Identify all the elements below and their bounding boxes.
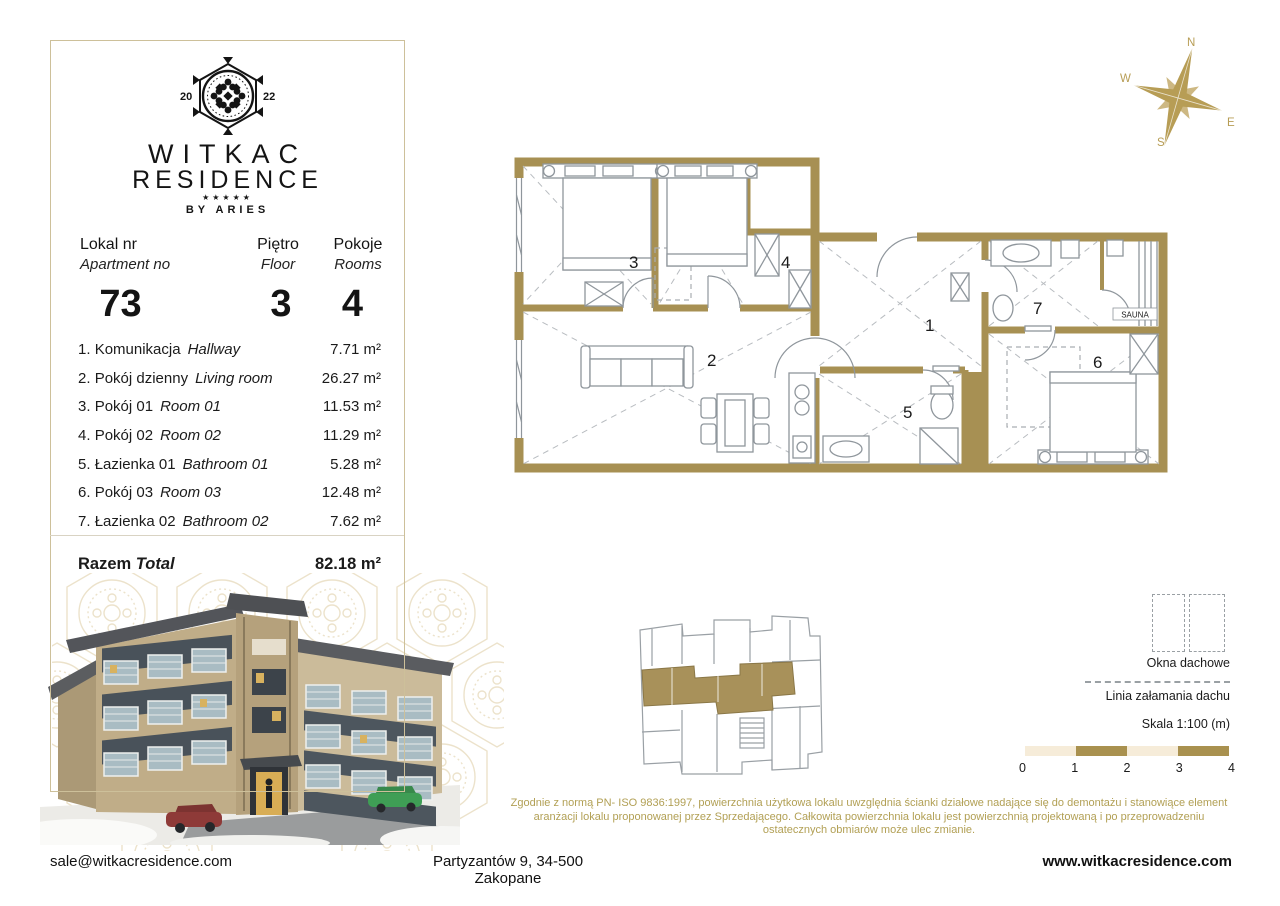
room-area: 11.53 m² xyxy=(323,398,381,415)
room-num: 1. xyxy=(78,341,91,358)
footer-address: Partyzantów 9, 34-500 Zakopane xyxy=(398,853,618,887)
room-name-en: Room 03 xyxy=(160,484,221,501)
brochure-page: 20 22 WITKAC RESIDENCE ★★★★★ BY ARIES Lo… xyxy=(0,0,1280,906)
scale-tick: 4 xyxy=(1228,761,1235,775)
scale-segment xyxy=(1127,746,1178,756)
total-label-pl: Razem xyxy=(78,555,131,573)
total-row: Razem Total 82.18 m² xyxy=(78,555,381,574)
roof-window-symbol xyxy=(1189,594,1225,652)
scale-segment xyxy=(1076,746,1127,756)
rooms-label: Pokoje Rooms xyxy=(314,235,402,274)
room-name-pl: Pokój dzienny xyxy=(95,370,188,387)
plan-room-2: 2 xyxy=(707,351,716,370)
plan-room-7: 7 xyxy=(1033,299,1042,318)
brand-stars: ★★★★★ xyxy=(50,193,405,202)
room-list: 1. KomunikacjaHallway 7.71 m² 2. Pokój d… xyxy=(78,341,381,542)
room-name-en: Living room xyxy=(195,370,273,387)
room-area: 5.28 m² xyxy=(330,456,381,473)
brand-name-line2: RESIDENCE xyxy=(50,166,405,195)
room-row-5: 5. Łazienka 01Bathroom 01 5.28 m² xyxy=(78,456,381,485)
room-num: 7. xyxy=(78,513,91,530)
brand-logo: 20 22 xyxy=(168,56,288,140)
floor-label: Piętro Floor xyxy=(234,235,322,274)
rooms-value: 4 xyxy=(330,283,375,326)
brand-byline: BY ARIES xyxy=(50,204,405,216)
room-name-en: Bathroom 02 xyxy=(183,513,269,530)
room-name-en: Room 01 xyxy=(160,398,221,415)
room-area: 12.48 m² xyxy=(322,484,381,501)
footer-email: sale@witkacresidence.com xyxy=(50,853,232,870)
disclaimer-text: Zgodnie z normą PN- ISO 9836:1997, powie… xyxy=(505,797,1233,838)
apartment-no-value: 73 xyxy=(78,283,163,326)
wall-chunk xyxy=(967,372,983,466)
room-name-en: Hallway xyxy=(188,341,241,358)
plan-room-1: 1 xyxy=(925,316,934,335)
scale-tick: 3 xyxy=(1176,761,1183,775)
room-name-pl: Komunikacja xyxy=(95,341,181,358)
compass-e: E xyxy=(1227,117,1235,129)
plan-room-5: 5 xyxy=(903,403,912,422)
roof-window-symbol xyxy=(1152,594,1185,652)
room-name-pl: Pokój 02 xyxy=(95,427,153,444)
room-area: 7.62 m² xyxy=(330,513,381,530)
room-row-2: 2. Pokój dziennyLiving room 26.27 m² xyxy=(78,370,381,399)
scale-segment xyxy=(1178,746,1229,756)
sauna-label: SAUNA xyxy=(1121,311,1149,320)
room-row-3: 3. Pokój 01Room 01 11.53 m² xyxy=(78,398,381,427)
legend-roof-windows: Okna dachowe xyxy=(1040,656,1230,670)
room-num: 4. xyxy=(78,427,91,444)
floor-plan: SAUNA 3 4 1 2 5 6 7 xyxy=(505,140,1173,485)
roof-break-line-symbol xyxy=(1085,681,1230,683)
floor-value: 3 xyxy=(256,283,306,326)
room-num: 5. xyxy=(78,456,91,473)
legend-roof-break-line: Linia załamania dachu xyxy=(1040,689,1230,703)
room-area: 7.71 m² xyxy=(330,341,381,358)
logo-year-right: 22 xyxy=(263,91,275,103)
key-plan xyxy=(622,602,837,792)
compass-n: N xyxy=(1187,37,1195,49)
room-row-1: 1. KomunikacjaHallway 7.71 m² xyxy=(78,341,381,370)
apartment-no-label: Lokal nr Apartment no xyxy=(80,235,170,274)
room-name-en: Bathroom 01 xyxy=(183,456,269,473)
total-area: 82.18 m² xyxy=(315,555,381,574)
room-name-pl: Pokój 03 xyxy=(95,484,153,501)
logo-year-left: 20 xyxy=(180,91,192,103)
room-name-pl: Pokój 01 xyxy=(95,398,153,415)
room-name-en: Room 02 xyxy=(160,427,221,444)
apartment-no-label-pl: Lokal nr xyxy=(80,235,170,255)
plan-room-4: 4 xyxy=(781,253,790,272)
room-row-6: 6. Pokój 03Room 03 12.48 m² xyxy=(78,484,381,513)
floor-label-en: Floor xyxy=(234,255,322,274)
compass-s: S xyxy=(1157,137,1165,149)
scale-tick: 1 xyxy=(1071,761,1078,775)
rooms-label-pl: Pokoje xyxy=(314,235,402,255)
room-area: 26.27 m² xyxy=(322,370,381,387)
panel-divider xyxy=(50,535,404,536)
room-name-pl: Łazienka 02 xyxy=(95,513,176,530)
rooms-label-en: Rooms xyxy=(314,255,402,274)
compass-w: W xyxy=(1120,73,1131,85)
apartment-no-label-en: Apartment no xyxy=(80,255,170,274)
plan-room-6: 6 xyxy=(1093,353,1102,372)
scale-segment xyxy=(1025,746,1076,756)
scale-tick: 0 xyxy=(1019,761,1026,775)
scale-bar xyxy=(1025,746,1229,756)
scale-ticks: 0 1 2 3 4 xyxy=(1019,761,1235,775)
room-num: 3. xyxy=(78,398,91,415)
legend-scale: Skala 1:100 (m) xyxy=(1040,717,1230,731)
room-name-pl: Łazienka 01 xyxy=(95,456,176,473)
plan-room-3: 3 xyxy=(629,253,638,272)
room-num: 6. xyxy=(78,484,91,501)
scale-tick: 2 xyxy=(1124,761,1131,775)
room-row-4: 4. Pokój 02Room 02 11.29 m² xyxy=(78,427,381,456)
room-row-7: 7. Łazienka 02Bathroom 02 7.62 m² xyxy=(78,513,381,542)
footer-website: www.witkacresidence.com xyxy=(1032,853,1232,870)
floor-label-pl: Piętro xyxy=(234,235,322,255)
room-num: 2. xyxy=(78,370,91,387)
room-area: 11.29 m² xyxy=(323,427,381,444)
total-label-en: Total xyxy=(136,555,175,573)
compass-rose: N W E S xyxy=(1115,32,1245,167)
